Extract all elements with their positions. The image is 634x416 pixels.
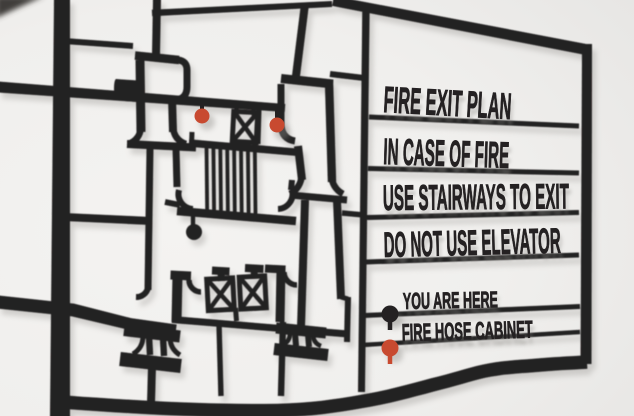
svg-text:IN CASE OF FIRE: IN CASE OF FIRE <box>383 131 510 176</box>
svg-text:USE STAIRWAYS TO EXIT: USE STAIRWAYS TO EXIT <box>383 176 569 218</box>
svg-text:YOU ARE HERE: YOU ARE HERE <box>403 286 498 314</box>
svg-text:FIRE EXIT PLAN: FIRE EXIT PLAN <box>383 79 513 127</box>
svg-text:DO NOT USE ELEVATOR: DO NOT USE ELEVATOR <box>383 221 561 265</box>
svg-text:FIRE HOSE CABINET: FIRE HOSE CABINET <box>401 317 533 347</box>
